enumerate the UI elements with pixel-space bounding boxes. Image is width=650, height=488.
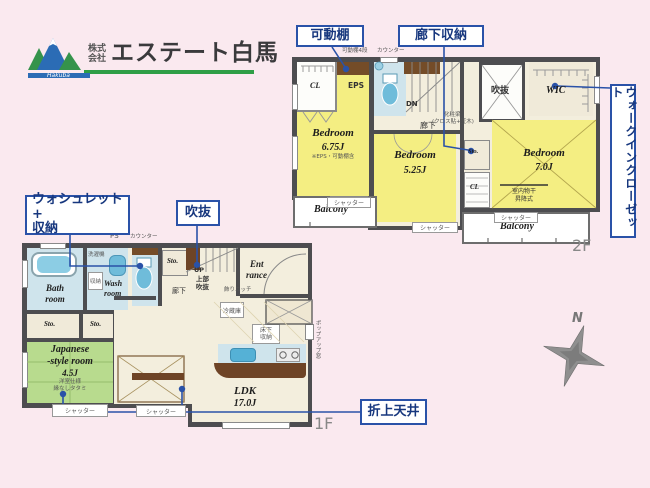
2f-storage-label: Sto. bbox=[468, 149, 478, 156]
2f-eps-label: EPS bbox=[348, 82, 364, 90]
2f-bedroom1-name: Bedroom bbox=[297, 128, 369, 139]
company-logo: Hakuba 株式 会社 エステート白馬 bbox=[15, 32, 255, 82]
callout-wic-label: ウォークインクローゼット bbox=[609, 86, 637, 236]
2f-drying-note1: 室内物干 bbox=[496, 189, 552, 195]
1f-japanese-note2: 縁なしタタミ bbox=[27, 387, 113, 393]
1f-kitchen-stove bbox=[276, 348, 300, 362]
company-prefix-bottom: 会社 bbox=[88, 54, 106, 64]
callout-washlet-label2: 収納 bbox=[32, 222, 58, 237]
1f-japanese-note1: 洋室仕様 bbox=[27, 380, 113, 386]
1f-window-bath-top bbox=[40, 243, 66, 249]
2f-shelf-note: 可動棚4段 bbox=[342, 49, 368, 55]
1f-bath-label1: Bath bbox=[27, 284, 83, 293]
2f-bedroom3-name: Bedroom bbox=[492, 148, 596, 159]
1f-popup-window bbox=[305, 324, 314, 340]
shutter-label: シャッター bbox=[65, 406, 95, 415]
2f-beam-note2: (クロス貼+笠木) bbox=[432, 120, 474, 126]
fridge-label: 冷蔵庫 bbox=[223, 306, 241, 315]
1f-wash-cabinet: 収納 bbox=[88, 272, 103, 290]
2f-shutter-balcony-right: シャッター bbox=[494, 212, 538, 223]
underfloor-label1: 床下 bbox=[260, 327, 272, 334]
1f-wash-label1: Wash bbox=[104, 280, 122, 288]
1f-japanese-size: 4.5J bbox=[27, 369, 113, 378]
2f-bedroom2 bbox=[374, 134, 456, 222]
1f-hallway-label: 廊下 bbox=[172, 288, 186, 295]
floor-plan-flyer: Hakuba 株式 会社 エステート白馬 bbox=[0, 0, 650, 488]
callout-washlet-label1: ウォシュレット+ bbox=[32, 193, 123, 223]
2f-beam-note1: 化粧梁 bbox=[444, 113, 461, 119]
2f-void-label: 吹抜 bbox=[491, 87, 509, 96]
1f-toilet-counter bbox=[132, 248, 158, 255]
underfloor-label2: 収納 bbox=[260, 334, 272, 341]
compass-icon bbox=[534, 316, 615, 397]
2f-shutter-bedroom2: シャッター bbox=[412, 222, 458, 233]
1f-floor-label: 1F bbox=[314, 416, 333, 432]
1f-ldk-label: LDK bbox=[210, 386, 280, 397]
callout-coffered-ceiling: 折上天井 bbox=[360, 399, 427, 425]
1f-shutter-mid: シャッター bbox=[136, 405, 186, 417]
wash-cabinet-label: 収納 bbox=[90, 277, 101, 285]
callout-atrium: 吹抜 bbox=[176, 200, 220, 226]
2f-shutter-balcony-left: シャッター bbox=[327, 197, 371, 208]
1f-counter-note: カウンター bbox=[130, 235, 158, 241]
1f-japanese-label2: -style room bbox=[27, 357, 113, 367]
callout-hallway-storage: 廊下収納 bbox=[398, 25, 484, 47]
1f-up-label: UP bbox=[194, 267, 204, 274]
1f-void-note2: 吹抜 bbox=[196, 284, 209, 291]
2f-counter bbox=[404, 62, 440, 74]
shutter-label: シャッター bbox=[334, 198, 364, 207]
1f-washbasin bbox=[109, 255, 126, 276]
2f-window-bed1-left-upper bbox=[292, 84, 298, 110]
1f-storage2-label: Sto. bbox=[90, 321, 101, 328]
2f-bedroom3-size: 7.0J bbox=[492, 163, 596, 173]
1f-laundry-label: 洗濯機 bbox=[88, 253, 105, 259]
1f-shutter-japanese: シャッター bbox=[52, 404, 108, 417]
1f-bathtub-water bbox=[37, 256, 71, 273]
company-name: エステート白馬 bbox=[111, 42, 279, 65]
1f-storage-mid-label: Sto. bbox=[167, 258, 178, 265]
logo-tagline: Hakuba bbox=[47, 73, 70, 79]
1f-niche-label: 飾りニッチ bbox=[224, 288, 252, 294]
2f-counter-note: カウンター bbox=[377, 49, 405, 55]
callout-walk-in-closet: ウォークインクローゼット bbox=[610, 84, 636, 238]
2f-drying-note2: 昇降式 bbox=[496, 197, 552, 203]
2f-bedroom1-size: 6.75J bbox=[297, 143, 369, 153]
2f-cl-label: CL bbox=[310, 82, 320, 90]
2f-bedroom1-note: ※EPS・可動棚含 bbox=[297, 155, 369, 161]
2f-floor-label: 2F bbox=[572, 238, 591, 254]
1f-fridge: 冷蔵庫 bbox=[220, 302, 244, 318]
2f-wic-label: WIC bbox=[546, 86, 565, 96]
1f-entrance-label2: rance bbox=[246, 271, 267, 280]
2f-window-toilet-top bbox=[380, 57, 398, 63]
callout-atrium-label: 吹抜 bbox=[185, 206, 211, 221]
2f-bedroom2-size: 5.25J bbox=[374, 166, 456, 176]
1f-storage1-label: Sto. bbox=[44, 321, 55, 328]
1f-window-ldk-bottom bbox=[222, 422, 290, 429]
callout-movable-shelf-label: 可動棚 bbox=[310, 29, 349, 44]
callout-movable-shelf: 可動棚 bbox=[296, 25, 364, 47]
1f-underfloor-storage: 床下 収納 bbox=[252, 324, 280, 344]
1f-wall-entrance-bottom bbox=[240, 294, 312, 298]
company-prefix: 株式 会社 bbox=[88, 44, 106, 65]
callout-hallway-storage-label: 廊下収納 bbox=[415, 29, 467, 44]
1f-void-note1: 上部 bbox=[196, 276, 209, 283]
shutter-label: シャッター bbox=[146, 407, 176, 416]
callout-coffered-ceiling-label: 折上天井 bbox=[367, 405, 419, 420]
callout-washlet: ウォシュレット+ 収納 bbox=[25, 195, 130, 235]
1f-entrance-label1: Ent bbox=[250, 260, 264, 269]
logo-underline-green bbox=[84, 70, 254, 74]
2f-window-wic-right bbox=[594, 76, 600, 104]
1f-japanese-label1: Japanese bbox=[27, 345, 113, 355]
shutter-label: シャッター bbox=[501, 213, 531, 222]
1f-ldk-size: 17.0J bbox=[210, 399, 280, 409]
company-prefix-top: 株式 bbox=[88, 44, 106, 54]
2f-wall-hall-bed2 bbox=[374, 130, 460, 134]
2f-balcony-right-label: Balcony bbox=[500, 222, 534, 232]
compass-north-label: N bbox=[572, 312, 583, 325]
2f-dn-label: DN bbox=[406, 101, 418, 108]
1f-popup-window-label: ポップアップ窓 bbox=[314, 320, 320, 359]
1f-bath-label2: room bbox=[27, 295, 83, 304]
2f-toilet bbox=[374, 62, 406, 116]
2f-movable-shelf bbox=[337, 62, 369, 75]
2f-window-bed1-left-lower bbox=[292, 136, 298, 170]
2f-cl2-label: CL bbox=[470, 184, 479, 191]
2f-bedroom2-name: Bedroom bbox=[374, 150, 456, 161]
1f-kitchen-sink bbox=[230, 348, 256, 362]
1f-wash-label2: room bbox=[104, 290, 121, 298]
shutter-label: シャッター bbox=[420, 223, 450, 232]
1f-kitchen-front-panel bbox=[214, 363, 306, 378]
